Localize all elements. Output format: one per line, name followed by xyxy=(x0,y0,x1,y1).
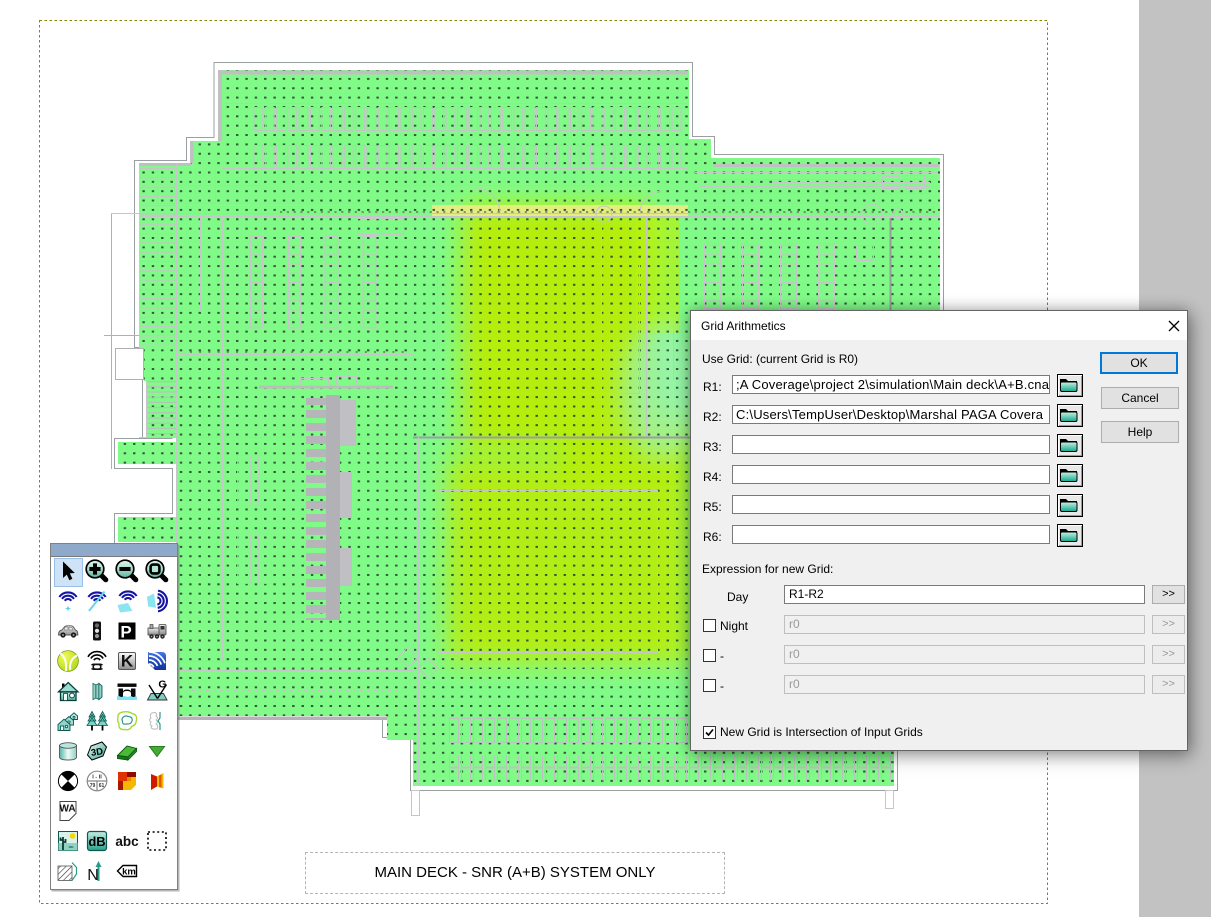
svg-text:WA: WA xyxy=(59,804,75,815)
svg-text:dB: dB xyxy=(89,834,106,849)
svg-text:abc: abc xyxy=(115,834,139,849)
svg-text:61: 61 xyxy=(99,783,105,789)
svg-text:G: G xyxy=(158,679,166,691)
svg-text:N: N xyxy=(88,867,100,883)
svg-text:km: km xyxy=(122,867,136,878)
svg-text:79: 79 xyxy=(90,783,96,789)
svg-text:3D: 3D xyxy=(91,746,105,759)
svg-text:P: P xyxy=(120,623,131,642)
svg-text:I - II: I - II xyxy=(93,775,103,781)
svg-text:K: K xyxy=(121,652,134,671)
